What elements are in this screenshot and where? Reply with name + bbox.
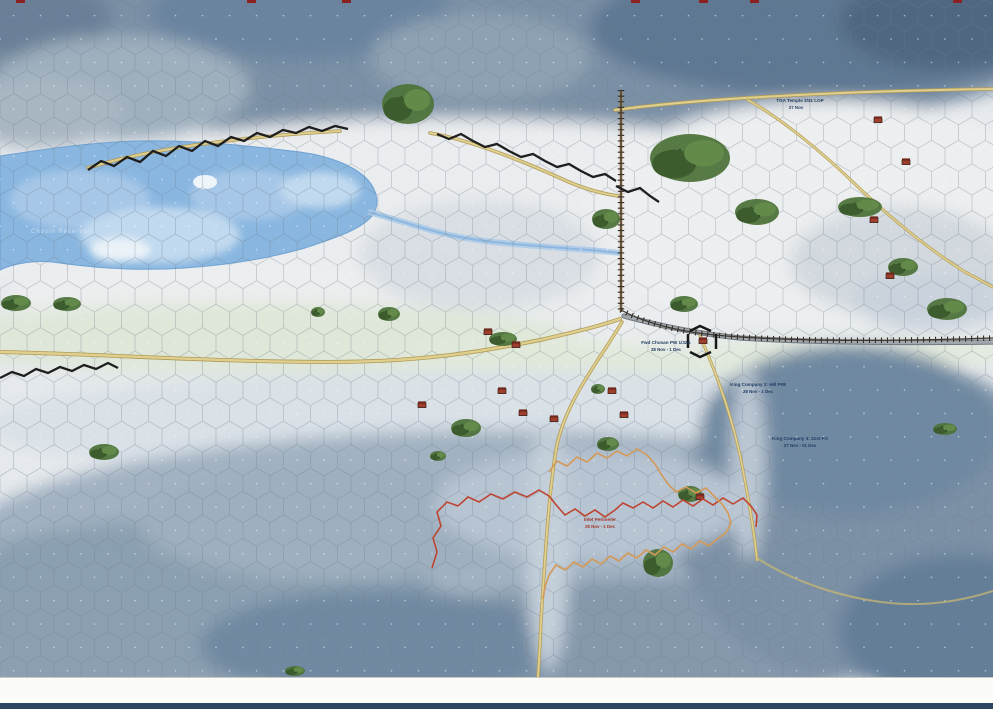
wargame-map-sheet: Chosin Reservoir Fwd Chosan PW 1/32A 28 …	[0, 0, 993, 709]
map-margin-bar: ✳ The Trials of Task Force Faith A Perim…	[0, 677, 993, 703]
paper-texture	[0, 0, 993, 677]
bottom-trim-strip	[0, 703, 993, 709]
hex-map: Chosin Reservoir Fwd Chosan PW 1/32A 28 …	[0, 0, 993, 677]
